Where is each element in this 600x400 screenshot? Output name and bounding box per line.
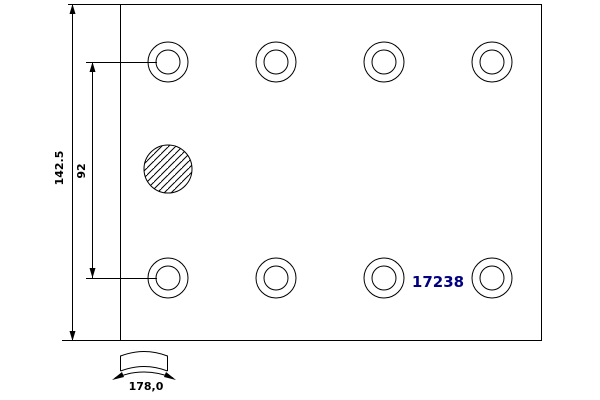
arc-width-label: 178,0: [129, 380, 164, 393]
dimension-hole-spacing-label: 92: [75, 163, 88, 178]
rivet-hole-r2c3: [364, 258, 404, 298]
arc-cross-section: 178,0: [112, 352, 176, 394]
rivet-hole-r1c4: [472, 42, 512, 82]
hatched-circle: [144, 145, 192, 193]
dimension-total-height-label: 142.5: [53, 151, 66, 186]
part-number: 17238: [412, 273, 464, 291]
brake-lining-technical-drawing: 142.5 92 178,0 17238: [0, 0, 600, 400]
drawing-svg: 142.5 92 178,0 17238: [0, 0, 600, 400]
rivet-hole-r1c2: [256, 42, 296, 82]
rivet-hole-r2c4: [472, 258, 512, 298]
rivet-hole-r2c2: [256, 258, 296, 298]
rivet-hole-r1c3: [364, 42, 404, 82]
arc-width-arrow: [115, 372, 173, 378]
